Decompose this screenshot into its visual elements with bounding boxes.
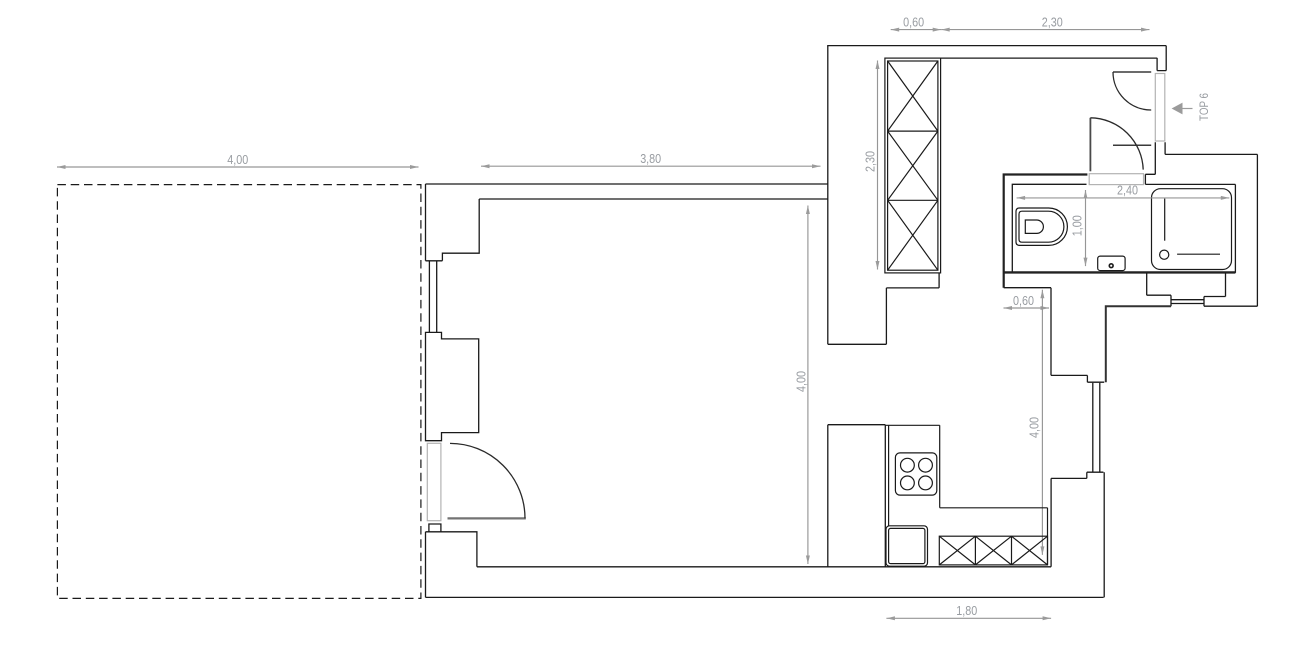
svg-text:2,40: 2,40 bbox=[1117, 184, 1138, 198]
svg-text:4,00: 4,00 bbox=[1028, 417, 1042, 438]
svg-text:2,30: 2,30 bbox=[1042, 16, 1063, 30]
svg-text:0,60: 0,60 bbox=[903, 16, 924, 30]
svg-text:0,60: 0,60 bbox=[1013, 294, 1034, 308]
svg-text:TOP 6: TOP 6 bbox=[1197, 93, 1211, 121]
svg-text:4,00: 4,00 bbox=[795, 371, 809, 392]
svg-text:1,00: 1,00 bbox=[1071, 215, 1085, 236]
svg-text:2,30: 2,30 bbox=[863, 151, 877, 172]
svg-text:1,80: 1,80 bbox=[956, 604, 977, 618]
svg-text:4,00: 4,00 bbox=[227, 153, 248, 167]
svg-text:3,80: 3,80 bbox=[640, 152, 661, 166]
